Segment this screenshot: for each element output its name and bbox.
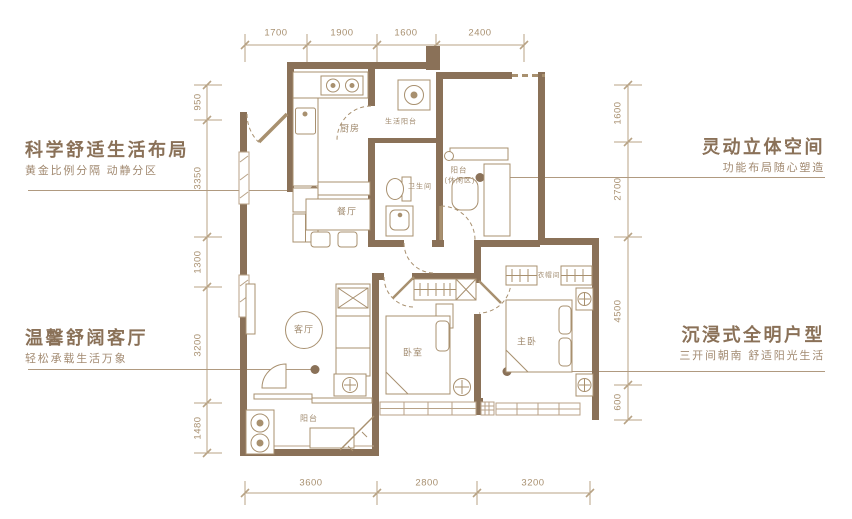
dim-left-1300: 1300 xyxy=(193,250,203,273)
callout-title: 科学舒适生活布局 xyxy=(25,141,189,159)
callout-dot-study xyxy=(476,173,485,182)
callout-top-left: 科学舒适生活布局 黄金比例分隔 动静分区 xyxy=(25,141,189,177)
callout-bottom-left: 温馨舒阔客厅 轻松承载生活万象 xyxy=(25,329,148,365)
master-bed-cloakroom xyxy=(506,266,593,396)
room-label-study-balcony: 阳台 xyxy=(451,166,468,174)
callout-dot-living xyxy=(311,365,320,374)
dim-top-1600: 1600 xyxy=(394,28,417,38)
dim-right-2700: 2700 xyxy=(613,177,623,200)
room-label-living: 客厅 xyxy=(294,326,314,335)
callout-title: 温馨舒阔客厅 xyxy=(25,329,148,347)
floorplan-svg xyxy=(0,0,852,519)
dim-top-2400: 2400 xyxy=(468,28,491,38)
dim-top-1700: 1700 xyxy=(264,28,287,38)
room-label-balcony: 阳台 xyxy=(300,415,318,423)
dim-left-3200: 3200 xyxy=(193,333,203,356)
callout-title: 沉浸式全明户型 xyxy=(679,326,825,344)
callout-title: 灵动立体空间 xyxy=(702,138,825,156)
callout-subtitle: 轻松承载生活万象 xyxy=(25,354,148,365)
dim-left-950: 950 xyxy=(193,93,203,110)
dim-right-600: 600 xyxy=(613,393,623,410)
bedroom-bed xyxy=(386,279,476,396)
dim-bottom-2800: 2800 xyxy=(415,478,438,488)
dim-bottom-3600: 3600 xyxy=(299,478,322,488)
dim-bottom-3200: 3200 xyxy=(521,478,544,488)
callout-top-right: 灵动立体空间 功能布局随心塑造 xyxy=(702,138,825,174)
callout-bottom-right: 沉浸式全明户型 三开间朝南 舒适阳光生活 xyxy=(679,326,825,362)
dim-left-3350: 3350 xyxy=(193,166,203,189)
dim-right-4500: 4500 xyxy=(613,299,623,322)
dim-left-1480: 1480 xyxy=(193,416,203,439)
room-label-service-balcony: 生活阳台 xyxy=(385,119,417,126)
callout-subtitle: 功能布局随心塑造 xyxy=(702,163,825,174)
floorplan-page: 科学舒适生活布局 黄金比例分隔 动静分区 温馨舒阔客厅 轻松承载生活万象 灵动立… xyxy=(0,0,852,519)
room-label-cloakroom: 衣帽间 xyxy=(538,273,561,280)
washer xyxy=(398,80,430,110)
room-label-study-balcony-sub: (休闲区) xyxy=(445,178,476,185)
room-label-kitchen: 厨房 xyxy=(340,125,360,134)
room-label-bedroom: 卧室 xyxy=(403,349,423,358)
sofa-rug-tv xyxy=(246,284,370,396)
callout-subtitle: 三开间朝南 舒适阳光生活 xyxy=(679,351,825,362)
callout-subtitle: 黄金比例分隔 动静分区 xyxy=(25,166,189,177)
dim-top-1900: 1900 xyxy=(330,28,353,38)
dim-right-1600: 1600 xyxy=(613,101,623,124)
room-label-bathroom: 卫生间 xyxy=(408,184,432,191)
study-desk xyxy=(445,148,511,236)
room-label-master: 主卧 xyxy=(517,338,537,347)
room-label-dining: 餐厅 xyxy=(337,208,357,217)
